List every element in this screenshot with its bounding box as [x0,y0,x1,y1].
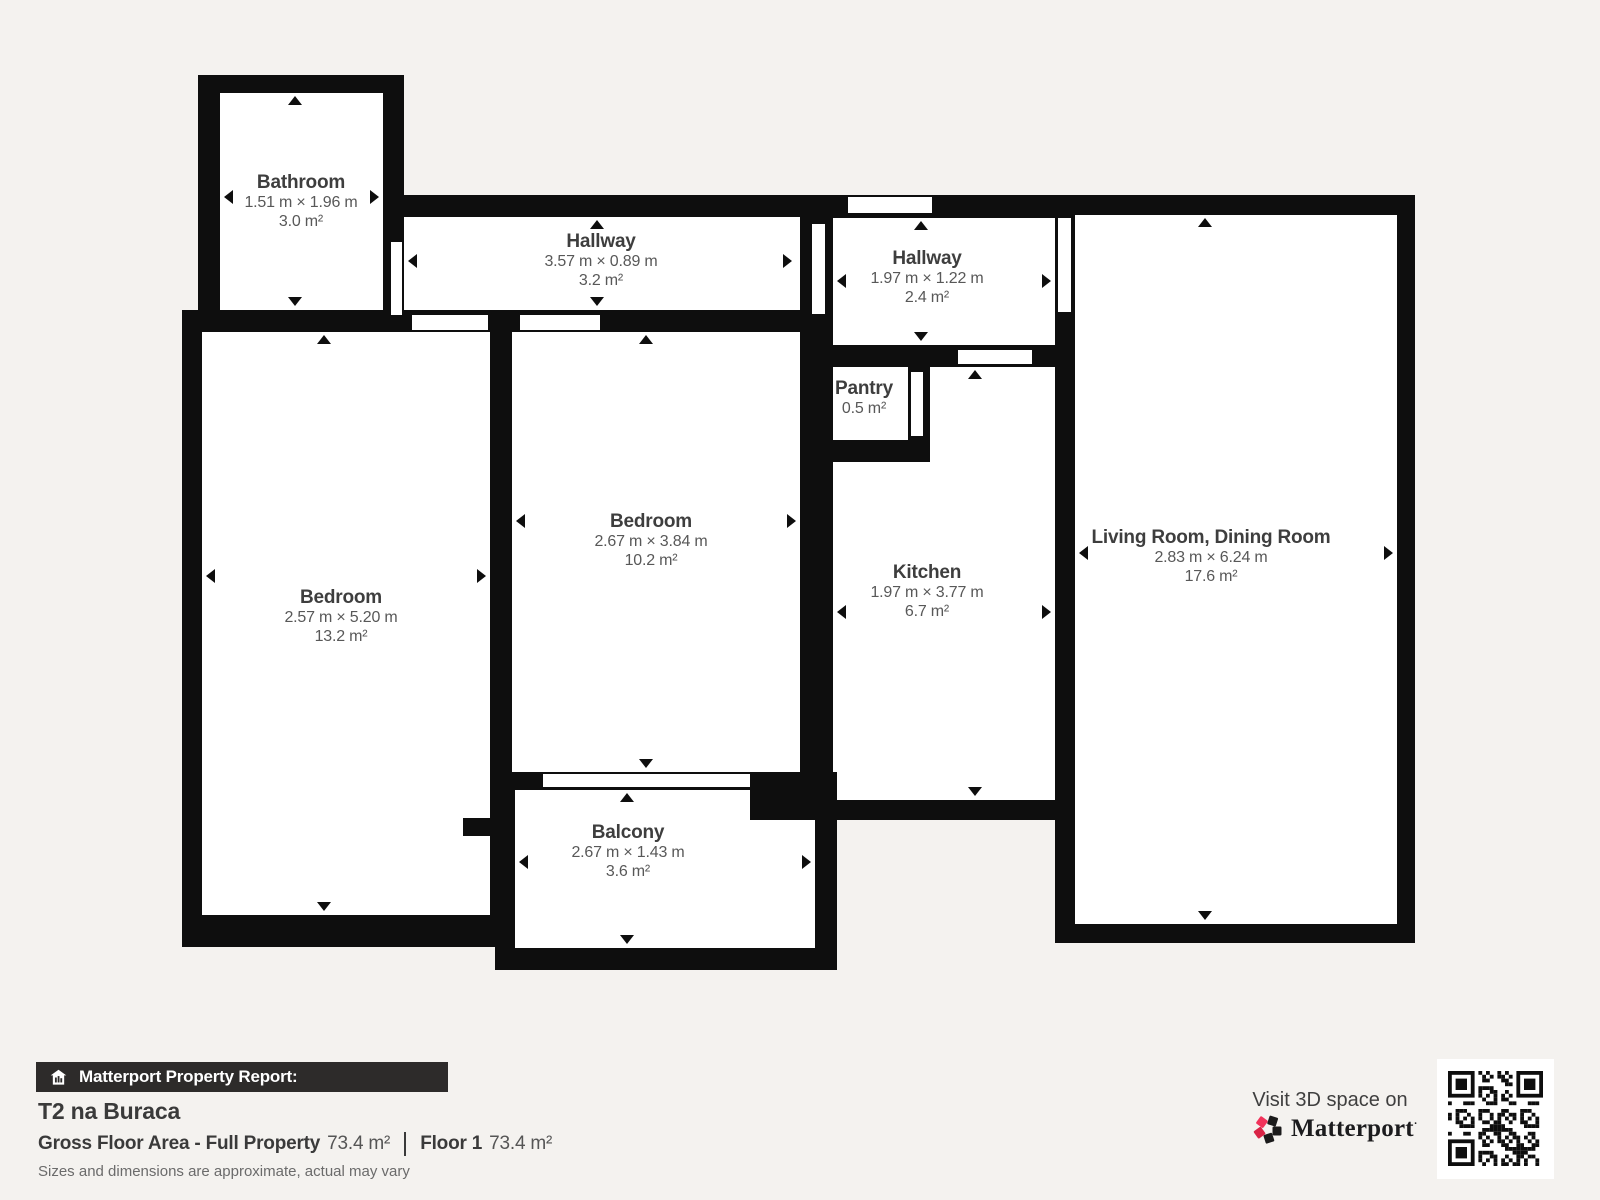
dimension-arrow-up-icon [968,370,982,379]
matterport-wordmark: Matterport· [1291,1115,1418,1143]
dimension-arrow-left-icon [224,190,233,204]
property-name: T2 na Buraca [38,1098,180,1125]
room-name: Balcony [571,822,684,844]
dimension-arrow-right-icon [783,254,792,268]
report-bar: Matterport Property Report: [36,1062,448,1092]
dimension-arrow-left-icon [837,605,846,619]
door-opening [911,372,923,436]
room-name: Hallway [870,248,983,270]
door-opening [391,242,402,315]
room-name: Kitchen [870,562,983,584]
dimension-arrow-right-icon [1384,546,1393,560]
floor-label: Floor 1 [420,1133,482,1155]
dimension-arrow-left-icon [519,855,528,869]
dimension-arrow-down-icon [1198,911,1212,920]
room-area: 10.2 m² [594,552,707,571]
matterport-pinwheel-icon [1253,1114,1283,1144]
room-name: Living Room, Dining Room [1091,527,1330,549]
dimension-arrow-down-icon [590,297,604,306]
dimension-arrow-up-icon [914,221,928,230]
gross-floor-area-line: Gross Floor Area - Full Property 73.4 m²… [38,1132,552,1156]
room-area: 6.7 m² [870,603,983,622]
dimension-arrow-left-icon [1079,546,1088,560]
room-name: Bedroom [284,587,397,609]
matterport-logo: Matterport· [1253,1114,1418,1144]
door-opening [812,224,825,314]
divider [404,1132,406,1156]
dimension-arrow-right-icon [1042,605,1051,619]
dimension-arrow-up-icon [1198,218,1212,227]
qr-code [1437,1059,1554,1179]
door-opening [520,315,600,330]
dimension-arrow-left-icon [206,569,215,583]
room-dimensions: 1.97 m × 1.22 m [870,270,983,289]
dimension-arrow-left-icon [837,274,846,288]
dimension-arrow-down-icon [968,787,982,796]
floor-plan [0,0,1600,1200]
room-label-hallway-right: Hallway 1.97 m × 1.22 m 2.4 m² [870,248,983,308]
room-name: Pantry [835,378,893,400]
room-area: 3.2 m² [544,272,657,291]
house-report-icon [50,1069,67,1086]
door-opening [958,350,1032,364]
room-name: Bedroom [594,511,707,533]
dimension-arrow-up-icon [639,335,653,344]
room-dimensions: 2.83 m × 6.24 m [1091,549,1330,568]
dimension-arrow-right-icon [370,190,379,204]
floor-plan-page: Bathroom 1.51 m × 1.96 m 3.0 m² Hallway … [0,0,1600,1200]
dimension-arrow-left-icon [408,254,417,268]
room-label-bathroom: Bathroom 1.51 m × 1.96 m 3.0 m² [244,172,357,232]
floor-value: 73.4 m² [489,1133,552,1155]
dimension-arrow-up-icon [620,793,634,802]
room-label-living-room: Living Room, Dining Room 2.83 m × 6.24 m… [1091,527,1330,587]
room-area: 3.0 m² [244,213,357,232]
room-area: 13.2 m² [284,628,397,647]
dimension-arrow-up-icon [317,335,331,344]
room-dimensions: 2.67 m × 1.43 m [571,844,684,863]
room-name: Bathroom [244,172,357,194]
room-dimensions: 2.57 m × 5.20 m [284,609,397,628]
room-dimensions: 3.57 m × 0.89 m [544,253,657,272]
disclaimer-text: Sizes and dimensions are approximate, ac… [38,1163,410,1180]
dimension-arrow-left-icon [516,514,525,528]
room-area: 0.5 m² [835,400,893,419]
room-dimensions: 2.67 m × 3.84 m [594,533,707,552]
gross-floor-area-label: Gross Floor Area - Full Property [38,1133,320,1155]
dimension-arrow-down-icon [639,759,653,768]
dimension-arrow-down-icon [914,332,928,341]
gross-floor-area-value: 73.4 m² [327,1133,390,1155]
room-dimensions: 1.51 m × 1.96 m [244,194,357,213]
dimension-arrow-right-icon [787,514,796,528]
dimension-arrow-up-icon [590,220,604,229]
room-area: 2.4 m² [870,289,983,308]
room-label-kitchen: Kitchen 1.97 m × 3.77 m 6.7 m² [870,562,983,622]
door-opening [412,315,488,330]
report-bar-label: Matterport Property Report: [79,1067,297,1087]
door-opening [1058,218,1071,312]
room-label-pantry: Pantry 0.5 m² [835,378,893,419]
room-dimensions: 1.97 m × 3.77 m [870,584,983,603]
room-area: 3.6 m² [571,863,684,882]
room-name: Hallway [544,231,657,253]
dimension-arrow-up-icon [288,96,302,105]
room-label-bedroom-left: Bedroom 2.57 m × 5.20 m 13.2 m² [284,587,397,647]
room-label-hallway-top: Hallway 3.57 m × 0.89 m 3.2 m² [544,231,657,291]
dimension-arrow-right-icon [477,569,486,583]
window-opening [543,774,750,787]
dimension-arrow-down-icon [317,902,331,911]
dimension-arrow-right-icon [1042,274,1051,288]
dimension-arrow-right-icon [802,855,811,869]
dimension-arrow-down-icon [620,935,634,944]
room-label-balcony: Balcony 2.67 m × 1.43 m 3.6 m² [571,822,684,882]
entry-door-opening [848,197,932,213]
room-label-bedroom-center: Bedroom 2.67 m × 3.84 m 10.2 m² [594,511,707,571]
dimension-arrow-down-icon [288,297,302,306]
visit-3d-text: Visit 3D space on [1240,1089,1420,1112]
room-area: 17.6 m² [1091,568,1330,587]
